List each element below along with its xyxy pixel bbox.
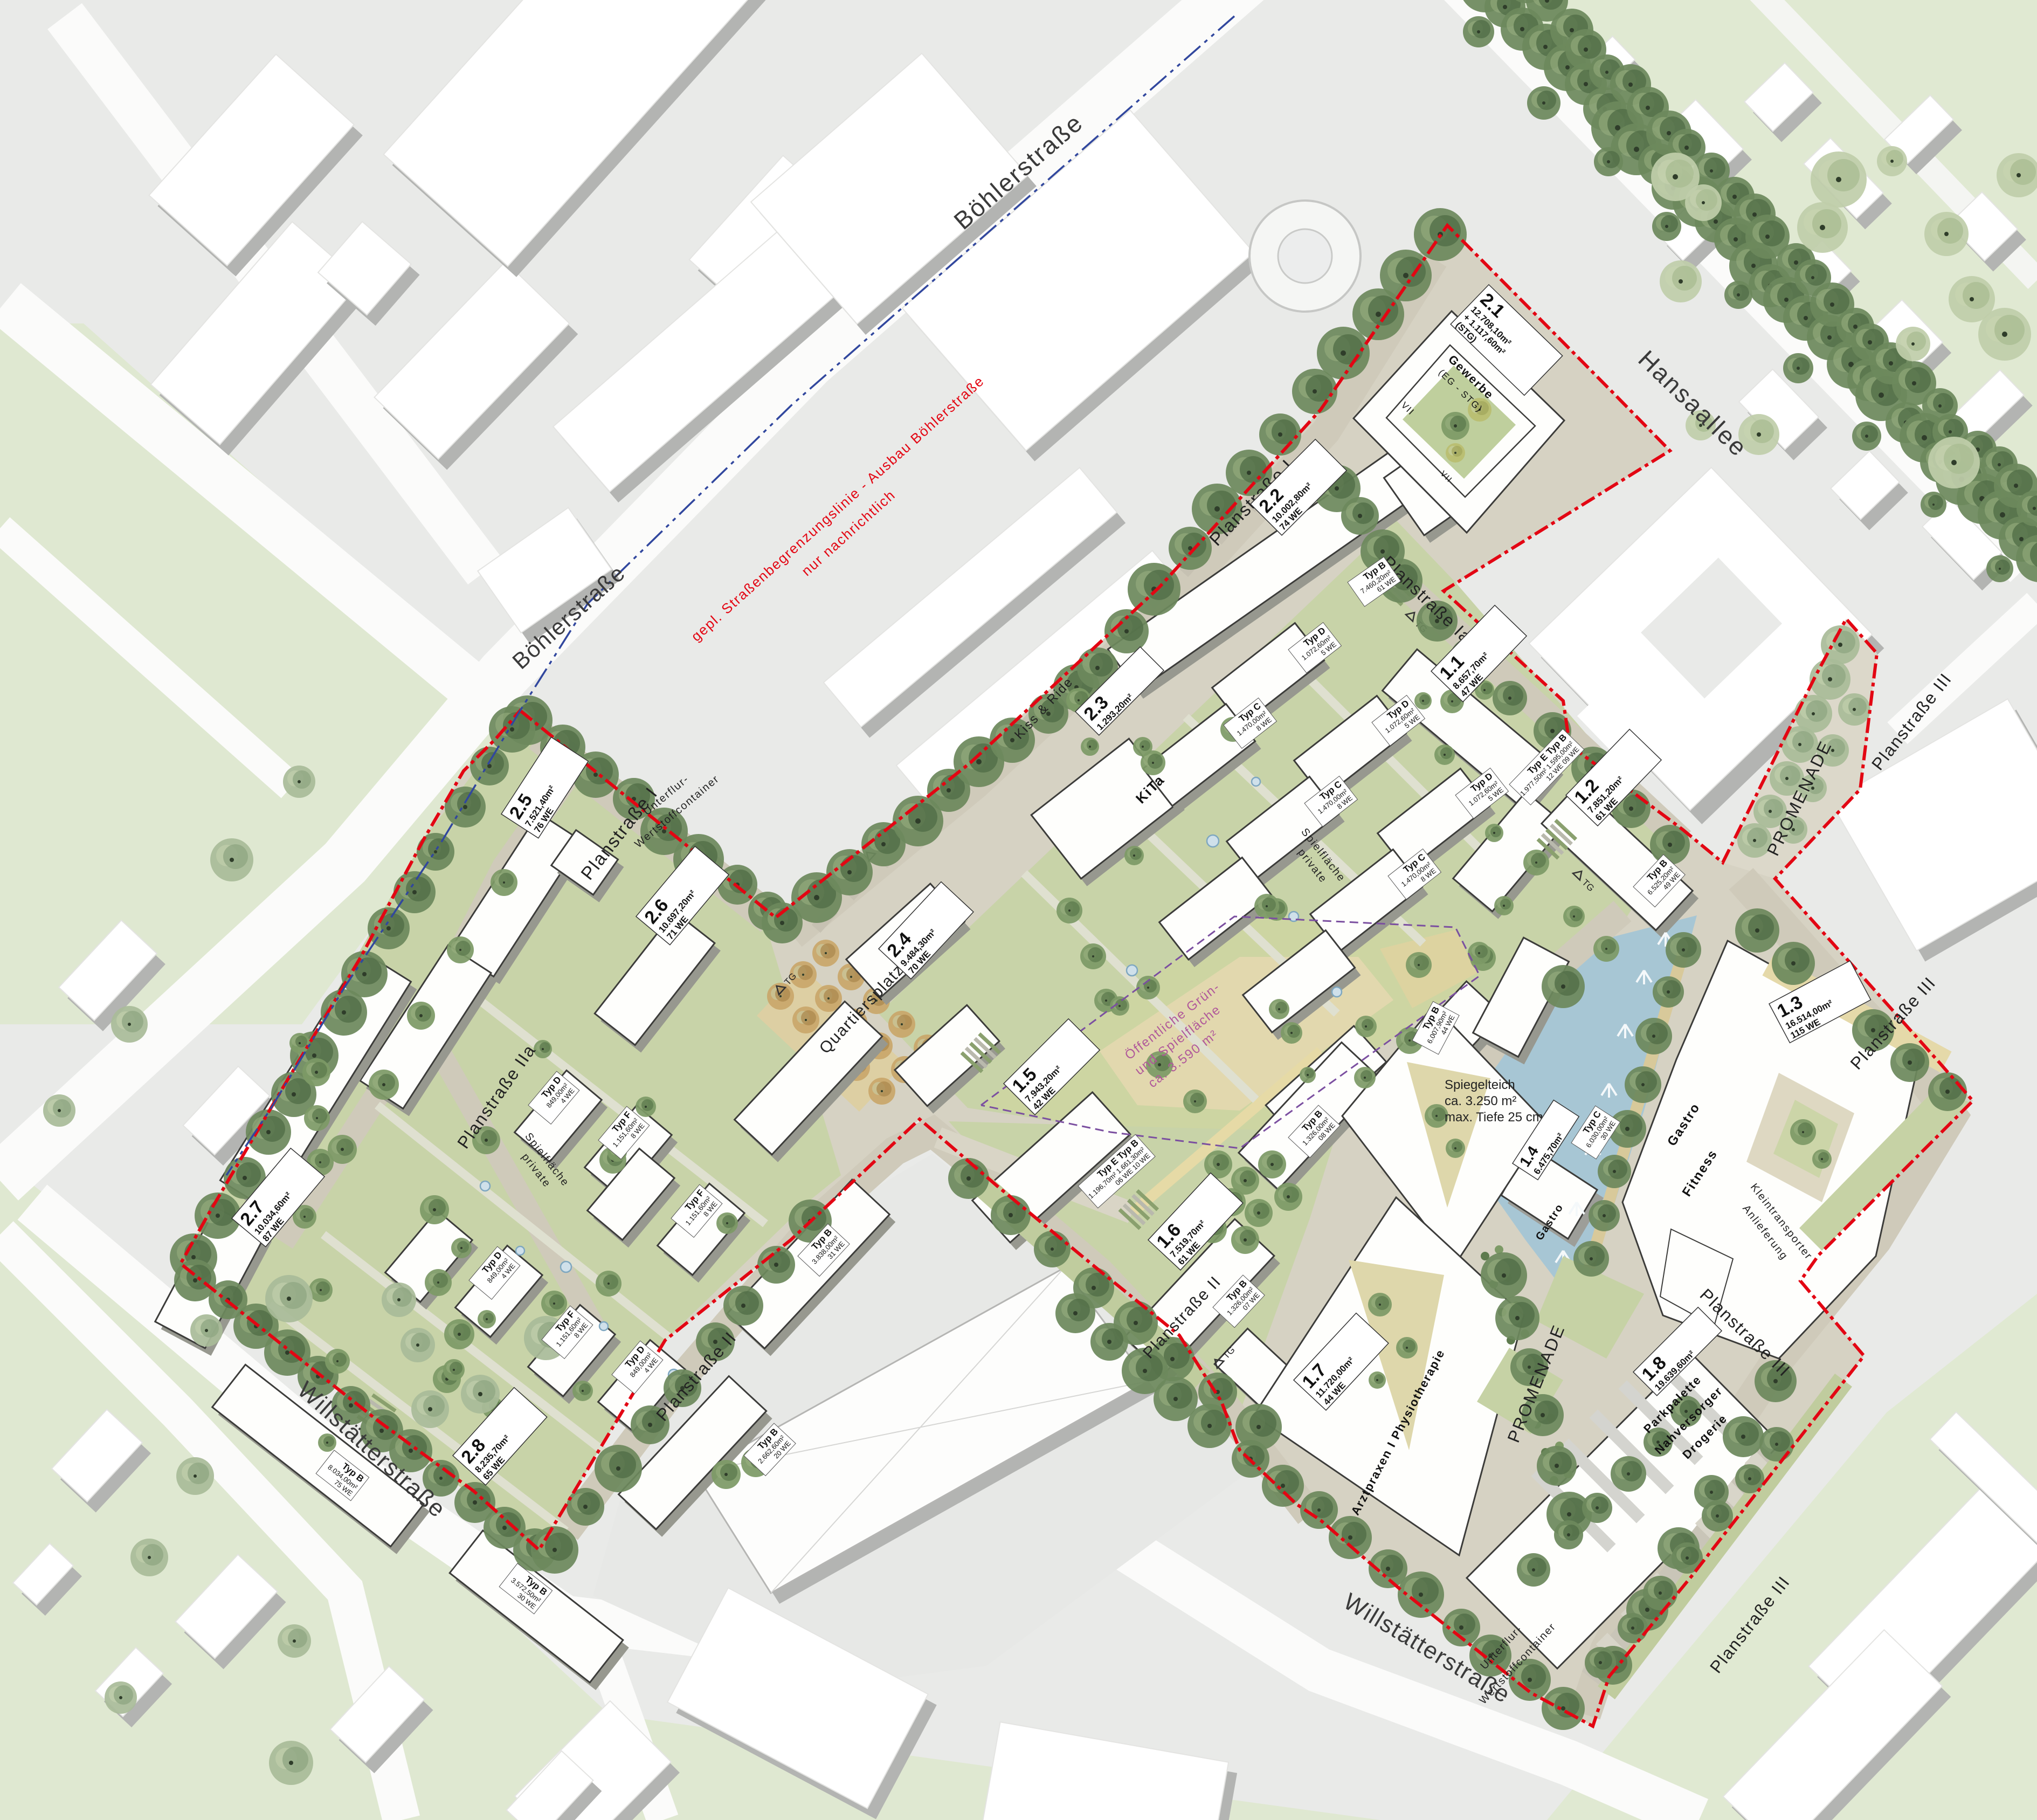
svg-text:max. Tiefe 25 cm: max. Tiefe 25 cm xyxy=(1445,1110,1543,1125)
svg-text:ca. 3.250 m²: ca. 3.250 m² xyxy=(1445,1094,1516,1108)
svg-text:Spiegelteich: Spiegelteich xyxy=(1445,1078,1515,1092)
